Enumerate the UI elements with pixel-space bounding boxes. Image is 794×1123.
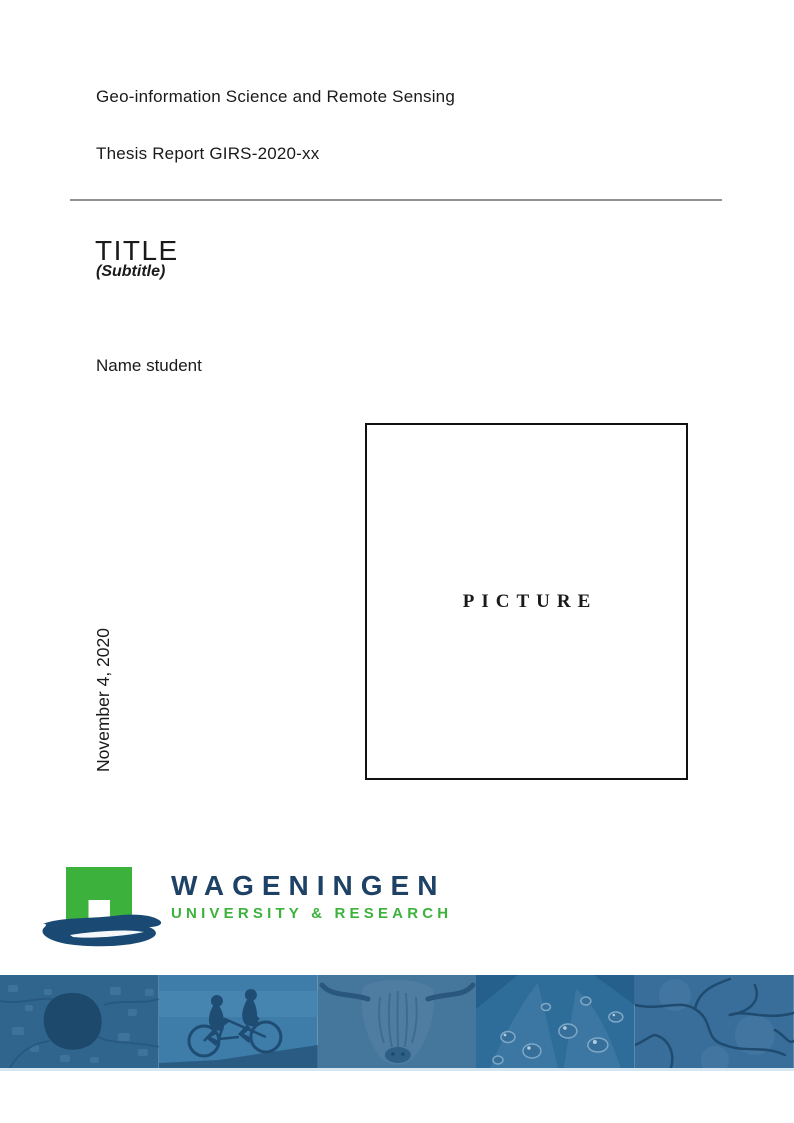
banner-segment-highland-cow	[318, 975, 477, 1068]
logo-brush-stroke-icon	[42, 915, 161, 947]
author-name: Name student	[96, 356, 202, 376]
thesis-cover-page: Geo-information Science and Remote Sensi…	[0, 0, 794, 1123]
program-name: Geo-information Science and Remote Sensi…	[96, 87, 455, 107]
banner-segment-cracked-earth	[635, 975, 794, 1068]
logo-wordmark: WAGENINGEN	[171, 870, 445, 902]
water-droplets-leaf-photo	[476, 975, 635, 1068]
thesis-subtitle: (Subtitle)	[96, 263, 165, 281]
tandem-cyclists-photo	[159, 975, 318, 1068]
banner-segment-water-droplets	[476, 975, 635, 1068]
report-id: Thesis Report GIRS-2020-xx	[96, 144, 319, 164]
aerial-map-photo	[0, 975, 159, 1068]
logo-tagline: UNIVERSITY & RESEARCH	[171, 905, 452, 922]
date-vertical-text: November 4, 2020	[93, 598, 117, 772]
horizontal-rule	[70, 199, 722, 201]
banner-segment-tandem-cyclists	[159, 975, 318, 1068]
picture-placeholder-label: PICTURE	[456, 591, 598, 613]
cracked-earth-photo	[635, 975, 794, 1068]
photo-banner	[0, 975, 794, 1071]
highland-cow-photo	[318, 975, 477, 1068]
picture-placeholder-box: PICTURE	[365, 423, 688, 780]
banner-segment-aerial-map	[0, 975, 159, 1068]
wageningen-arch-brush-logo-icon	[38, 860, 168, 954]
